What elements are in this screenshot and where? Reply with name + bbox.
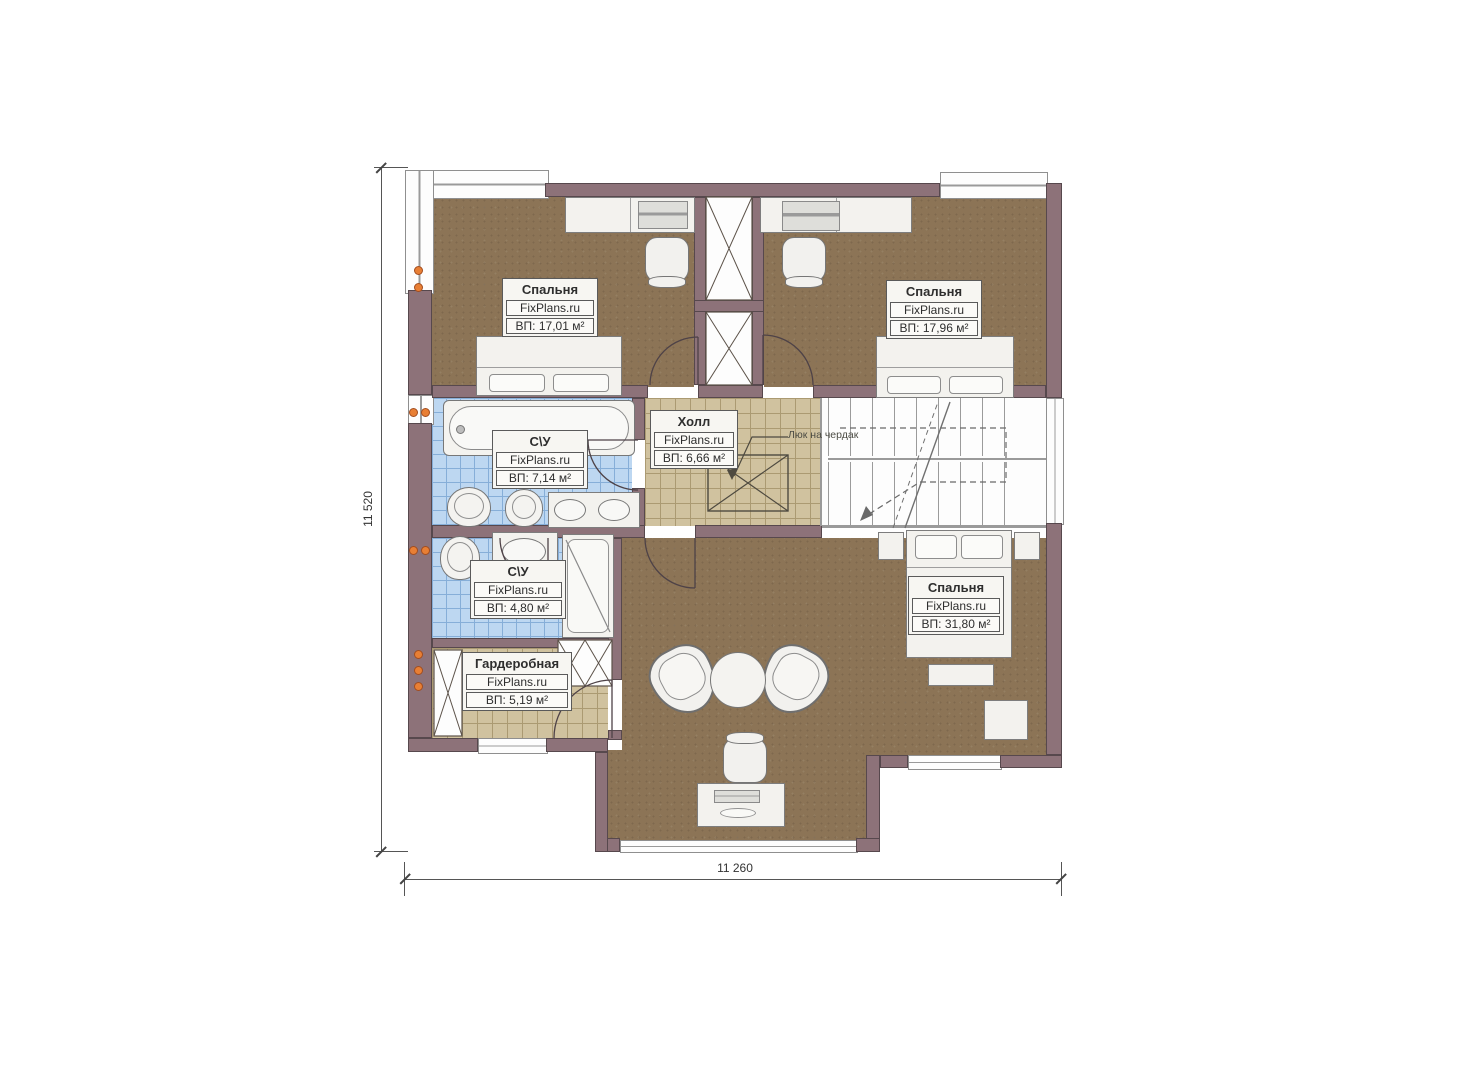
desk-chair-bedroom1	[645, 237, 689, 283]
wall-bay-bottom-b	[856, 838, 880, 852]
pillow	[887, 376, 941, 394]
toilet	[447, 487, 491, 527]
room-brand: FixPlans.ru	[474, 582, 562, 598]
dimension-width-label: 11 260	[695, 861, 775, 875]
wall-bottom-left-b	[546, 738, 608, 752]
blanket-line	[907, 567, 1011, 568]
sink	[598, 499, 630, 521]
mirror-icon	[714, 790, 760, 803]
bidet-bowl	[512, 495, 536, 519]
toilet-bowl	[454, 493, 484, 519]
nightstand	[1014, 532, 1040, 560]
room-name: Спальня	[912, 579, 1000, 596]
room-area: ВП: 17,96 м²	[890, 320, 978, 336]
wall-bottom-right-a	[880, 755, 908, 768]
wall-bath2-wardrobe	[432, 638, 622, 648]
window-right	[1046, 398, 1064, 525]
room-name: Холл	[654, 413, 734, 430]
desk-chair-bedroom2	[782, 237, 826, 283]
room-name: С\У	[474, 563, 562, 580]
socket-icon	[414, 650, 423, 659]
armchair-seat	[766, 647, 826, 707]
wall-mid-lower-b	[695, 525, 822, 538]
wall-mid-upper-b	[698, 385, 763, 398]
bed-bench	[928, 664, 994, 686]
pillow	[949, 376, 1003, 394]
room-area: ВП: 5,19 м²	[466, 692, 568, 708]
wall-top	[545, 183, 940, 197]
sink	[554, 499, 586, 521]
armchair-seat	[652, 647, 712, 707]
wall-right-lower	[1046, 523, 1062, 755]
room-label-bathroom2: С\У FixPlans.ru ВП: 4,80 м²	[470, 560, 566, 619]
bed-bedroom1	[476, 336, 622, 396]
room-brand: FixPlans.ru	[506, 300, 594, 316]
window-bottom-left	[478, 738, 548, 754]
shower	[562, 534, 614, 638]
room-label-bedroom2: Спальня FixPlans.ru ВП: 17,96 м²	[886, 280, 982, 339]
printer-icon	[638, 201, 688, 229]
pillow	[553, 374, 609, 392]
socket-icon	[409, 408, 418, 417]
stair-edge-line	[820, 398, 822, 526]
dressing-chair	[723, 737, 767, 783]
dimension-line-vertical	[381, 168, 382, 852]
nightstand	[878, 532, 904, 560]
socket-icon	[421, 408, 430, 417]
socket-icon	[414, 682, 423, 691]
dimension-line-horizontal	[405, 879, 1062, 880]
wall-bay-left	[595, 752, 608, 852]
faucet-icon	[456, 425, 465, 434]
room-area: ВП: 4,80 м²	[474, 600, 562, 616]
room-brand: FixPlans.ru	[654, 432, 734, 448]
wall-bottom-right-b	[1000, 755, 1062, 768]
room-label-bedroom1: Спальня FixPlans.ru ВП: 17,01 м²	[502, 278, 598, 337]
window-bay	[620, 840, 858, 853]
stairs-upper-flight	[828, 398, 1014, 456]
wall-shaft-left	[694, 197, 706, 385]
dimension-height-label: 11 520	[361, 469, 375, 549]
stair-guard-line	[822, 525, 1046, 528]
room-label-wardrobe: Гардеробная FixPlans.ru ВП: 5,19 м²	[462, 652, 572, 711]
desk-divider	[630, 198, 631, 232]
stairs-lower-flight	[828, 462, 1014, 525]
room-area: ВП: 7,14 м²	[496, 470, 584, 486]
room-name: Спальня	[506, 281, 594, 298]
coffee-table	[710, 652, 766, 708]
room-area: ВП: 31,80 м²	[912, 616, 1000, 632]
stairs-rail-line	[828, 458, 1046, 460]
side-table	[984, 700, 1028, 740]
socket-icon	[421, 546, 430, 555]
dressing-table	[697, 783, 785, 827]
wall-bottom-left-a	[408, 738, 478, 752]
bed-bedroom2	[876, 336, 1014, 398]
wall-shaft-mid	[694, 300, 764, 312]
chair-back	[785, 276, 823, 288]
room-name: С\У	[496, 433, 584, 450]
blanket-line	[877, 367, 1013, 368]
room-brand: FixPlans.ru	[912, 598, 1000, 614]
pillow	[489, 374, 545, 392]
room-name: Гардеробная	[466, 655, 568, 672]
pillow	[915, 535, 957, 559]
shower-tray	[567, 539, 609, 633]
window-top-right	[940, 172, 1048, 199]
bidet	[505, 489, 543, 527]
room-brand: FixPlans.ru	[466, 674, 568, 690]
chair-back	[648, 276, 686, 288]
room-label-bathroom1: С\У FixPlans.ru ВП: 7,14 м²	[492, 430, 588, 489]
socket-icon	[409, 546, 418, 555]
room-area: ВП: 6,66 м²	[654, 450, 734, 466]
floor-plan-canvas: Спальня FixPlans.ru ВП: 17,01 м² Спальня…	[0, 0, 1474, 1080]
room-brand: FixPlans.ru	[890, 302, 978, 318]
window-bottom-right	[908, 755, 1002, 770]
wall-bedroom3-left-b	[608, 730, 622, 740]
socket-icon	[414, 266, 423, 275]
chair-back	[726, 732, 764, 744]
room-area: ВП: 17,01 м²	[506, 318, 594, 334]
wall-left-b	[408, 423, 432, 738]
socket-icon	[414, 666, 423, 675]
wall-right-upper	[1046, 183, 1062, 398]
room-label-hall: Холл FixPlans.ru ВП: 6,66 м²	[650, 410, 738, 469]
attic-note: Люк на чердак	[788, 429, 858, 441]
room-name: Спальня	[890, 283, 978, 300]
room-brand: FixPlans.ru	[496, 452, 584, 468]
room-label-bedroom3: Спальня FixPlans.ru ВП: 31,80 м²	[908, 576, 1004, 635]
corner-window-left	[405, 170, 434, 294]
wall-left-a	[408, 290, 432, 395]
printer-icon	[782, 201, 840, 231]
socket-icon	[414, 283, 423, 292]
pillow	[961, 535, 1003, 559]
blanket-line	[477, 367, 621, 368]
tray	[720, 808, 756, 818]
